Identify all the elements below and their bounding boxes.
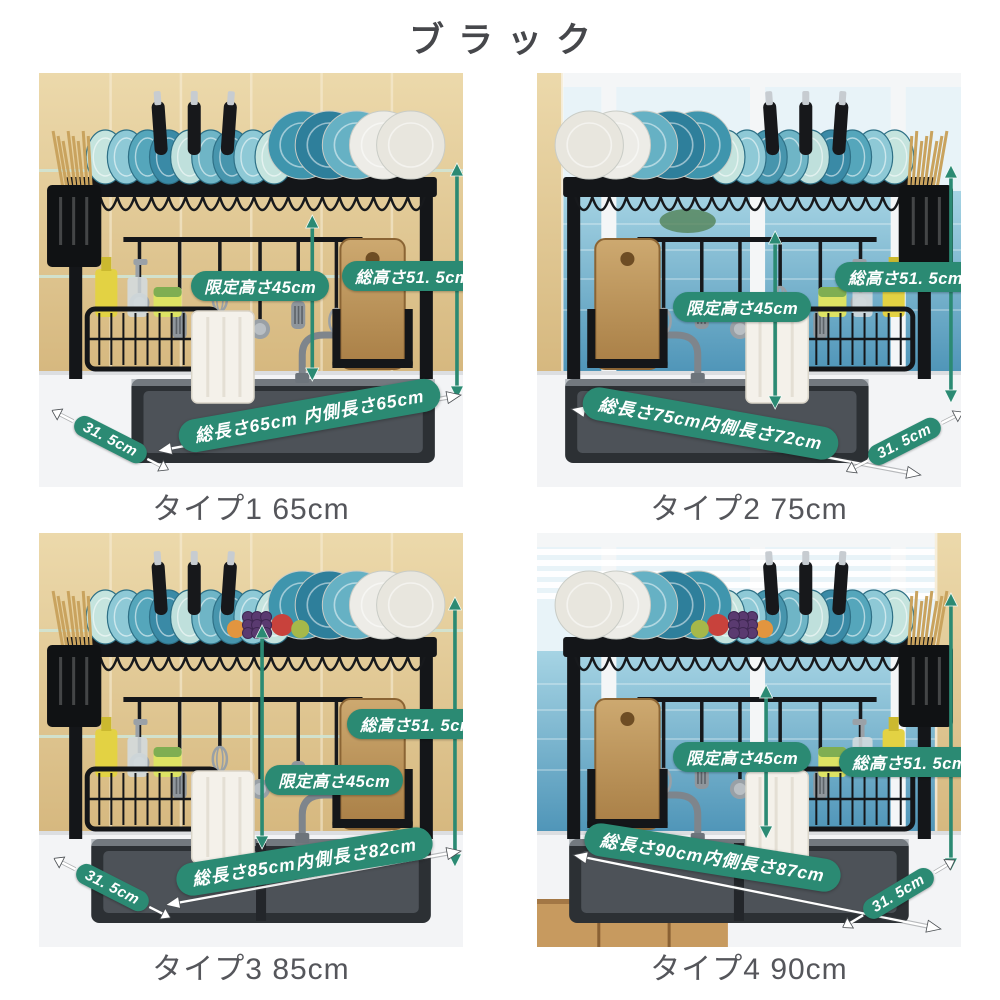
panel-grid: 限定高さ45cm 総高さ51. 5cm 総長さ65cm 内側長さ65cm 31.… — [0, 73, 1000, 991]
limited-height-label: 限定高さ45cm — [673, 742, 811, 772]
limited-height-label: 限定高さ45cm — [673, 292, 811, 322]
panel-type3: 限定高さ45cm 総高さ51. 5cm 総長さ85cm内側長さ82cm 31. … — [39, 533, 463, 991]
color-title: ブラック — [0, 0, 1000, 73]
photo-type4-dish-rack: 限定高さ45cm 総高さ51. 5cm 総長さ90cm内側長さ87cm 31. … — [537, 533, 961, 947]
total-height-badge: 総高さ51. 5cm — [347, 709, 463, 739]
limited-height-badge: 限定高さ45cm — [673, 742, 811, 772]
total-height-badge: 総高さ51. 5cm — [342, 261, 463, 291]
photo-type1-dish-rack: 限定高さ45cm 総高さ51. 5cm 総長さ65cm 内側長さ65cm 31.… — [39, 73, 463, 487]
panel-type2: 限定高さ45cm 総高さ51. 5cm 総長さ75cm内側長さ72cm 31. … — [537, 73, 961, 531]
panel-type1: 限定高さ45cm 総高さ51. 5cm 総長さ65cm 内側長さ65cm 31.… — [39, 73, 463, 531]
panel-caption-type3: タイプ3 85cm — [39, 949, 463, 991]
total-height-label: 総高さ51. 5cm — [839, 747, 961, 777]
total-height-label: 総高さ51. 5cm — [835, 262, 961, 292]
total-height-badge: 総高さ51. 5cm — [839, 747, 961, 777]
limited-height-badge: 限定高さ45cm — [673, 292, 811, 322]
photo-type2-dish-rack: 限定高さ45cm 総高さ51. 5cm 総長さ75cm内側長さ72cm 31. … — [537, 73, 961, 487]
limited-height-badge: 限定高さ45cm — [191, 271, 329, 301]
product-image: ブラック 限定高さ45cm 総高さ51. 5cm 総長さ65cm 内側長さ65c… — [0, 0, 1000, 1000]
limited-height-badge: 限定高さ45cm — [265, 765, 403, 795]
limited-height-label: 限定高さ45cm — [265, 765, 403, 795]
panel-caption-type1: タイプ1 65cm — [39, 489, 463, 531]
total-height-badge: 総高さ51. 5cm — [835, 262, 961, 292]
total-height-label: 総高さ51. 5cm — [342, 261, 463, 291]
panel-caption-type4: タイプ4 90cm — [537, 949, 961, 991]
total-height-label: 総高さ51. 5cm — [347, 709, 463, 739]
panel-caption-type2: タイプ2 75cm — [537, 489, 961, 531]
photo-type3-dish-rack: 限定高さ45cm 総高さ51. 5cm 総長さ85cm内側長さ82cm 31. … — [39, 533, 463, 947]
limited-height-label: 限定高さ45cm — [191, 271, 329, 301]
panel-type4: 限定高さ45cm 総高さ51. 5cm 総長さ90cm内側長さ87cm 31. … — [537, 533, 961, 991]
